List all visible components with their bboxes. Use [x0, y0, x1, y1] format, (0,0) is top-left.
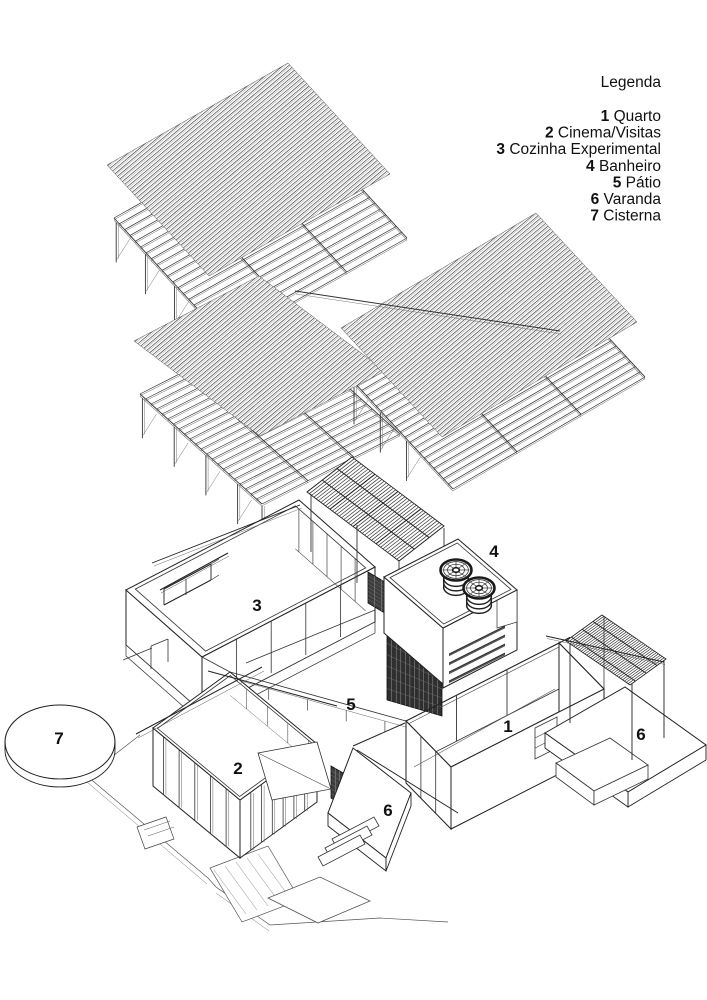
svg-text:6: 6 [636, 725, 645, 744]
svg-text:1 Quarto: 1 Quarto [601, 108, 661, 125]
svg-text:4: 4 [489, 542, 499, 561]
svg-text:6 Varanda: 6 Varanda [591, 191, 662, 208]
svg-text:6: 6 [383, 801, 392, 820]
svg-text:3 Cozinha Experimental: 3 Cozinha Experimental [496, 141, 661, 158]
svg-text:5 Pátio: 5 Pátio [613, 174, 661, 191]
svg-text:Legenda: Legenda [601, 74, 662, 91]
svg-text:5: 5 [346, 695, 355, 714]
svg-text:2 Cinema/Visitas: 2 Cinema/Visitas [545, 125, 661, 142]
svg-text:2: 2 [233, 759, 242, 778]
svg-text:3: 3 [252, 596, 261, 615]
svg-text:7: 7 [54, 729, 63, 748]
svg-text:1: 1 [503, 717, 512, 736]
svg-text:7 Cisterna: 7 Cisterna [590, 208, 661, 225]
svg-text:4 Banheiro: 4 Banheiro [586, 158, 661, 175]
